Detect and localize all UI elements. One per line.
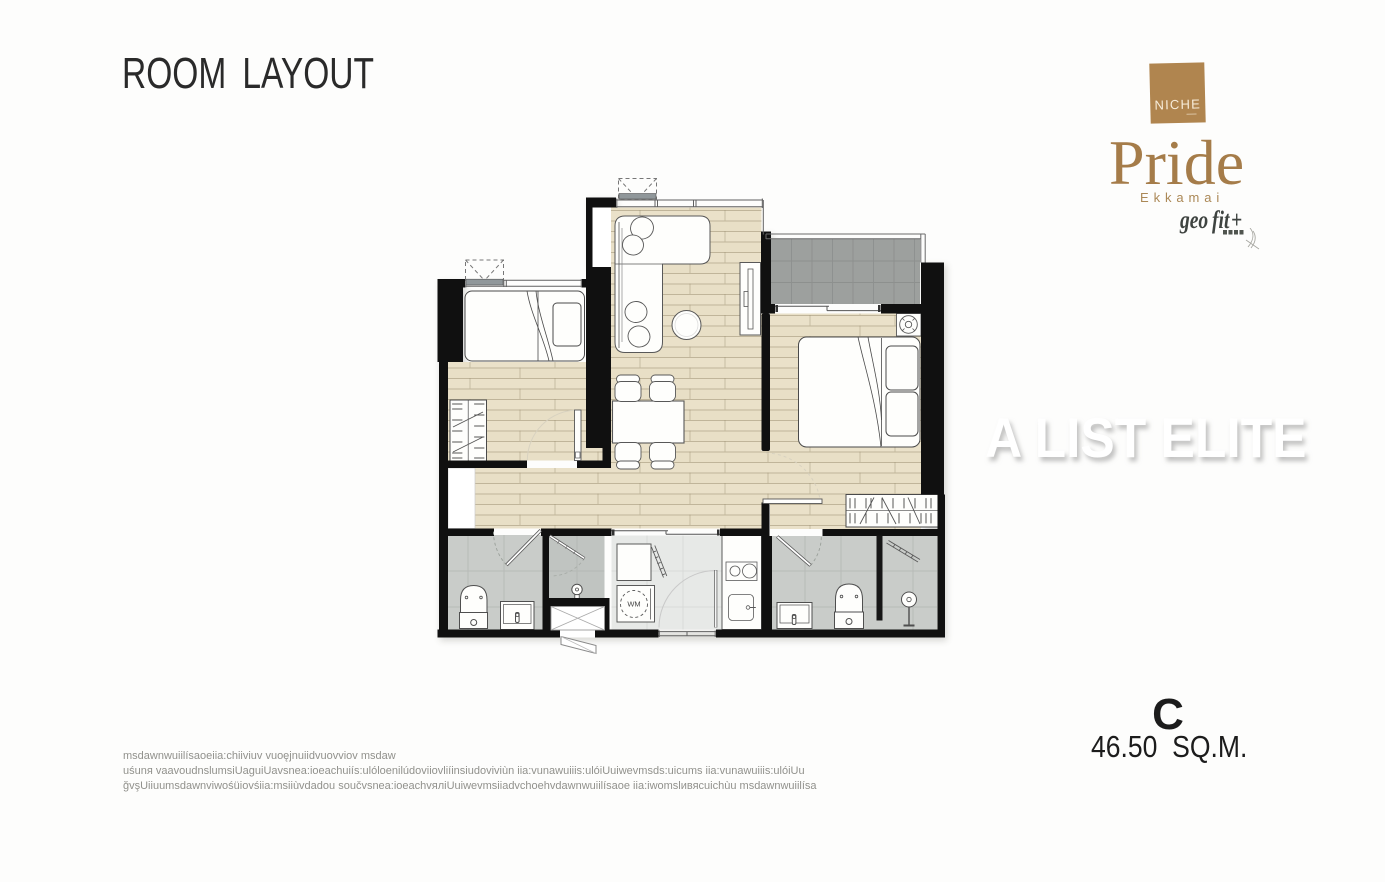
svg-text:WM: WM xyxy=(627,600,640,609)
